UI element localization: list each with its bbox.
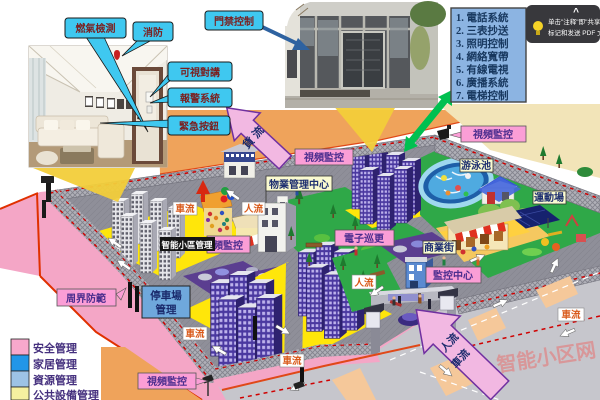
svg-text:游泳池: 游泳池 <box>461 159 491 172</box>
svg-text:視頻監控: 視頻監控 <box>472 128 513 141</box>
svg-text:報警系統: 報警系統 <box>180 92 220 105</box>
svg-text:3. 照明控制: 3. 照明控制 <box>456 37 509 50</box>
svg-text:視頻監控: 視頻監控 <box>146 375 187 388</box>
svg-text:頻監控: 頻監控 <box>213 239 243 252</box>
svg-text:4. 網絡寬帶: 4. 網絡寬帶 <box>456 50 509 63</box>
svg-text:車流: 車流 <box>185 328 205 340</box>
svg-text:5. 有線電視: 5. 有線電視 <box>456 63 509 76</box>
svg-text:資源管理: 資源管理 <box>33 373 77 387</box>
svg-text:運動場: 運動場 <box>534 191 564 204</box>
svg-text:周界防範: 周界防範 <box>66 292 106 305</box>
svg-text:公共設備管理: 公共設備管理 <box>33 388 99 400</box>
svg-text:消防: 消防 <box>143 26 163 39</box>
svg-text:安全管理: 安全管理 <box>33 341 77 355</box>
svg-text:物業管理中心: 物業管理中心 <box>269 178 329 191</box>
svg-text:停車場: 停車場 <box>150 289 182 302</box>
svg-text:1. 電話系統: 1. 電話系統 <box>456 11 509 24</box>
svg-text:^: ^ <box>573 7 579 18</box>
svg-text:電子巡更: 電子巡更 <box>344 232 385 245</box>
svg-text:家居管理: 家居管理 <box>33 357 77 371</box>
svg-text:燃氣檢測: 燃氣檢測 <box>76 22 116 35</box>
svg-text:人流: 人流 <box>244 203 264 215</box>
svg-text:車流: 車流 <box>282 355 302 367</box>
svg-text:2. 三表抄送: 2. 三表抄送 <box>456 24 509 37</box>
svg-text:单击"注释"即"共享": 单击"注释"即"共享" <box>548 17 600 26</box>
svg-text:視頻監控: 視頻監控 <box>303 151 344 164</box>
svg-text:可視對講: 可視對講 <box>180 66 220 79</box>
svg-text:智能小區管理: 智能小區管理 <box>160 240 213 250</box>
svg-text:監控中心: 監控中心 <box>433 269 473 282</box>
svg-text:6. 廣播系統: 6. 廣播系統 <box>456 76 509 89</box>
svg-text:人流: 人流 <box>354 277 374 289</box>
svg-text:商業街: 商業街 <box>424 241 454 254</box>
svg-text:車流: 車流 <box>561 309 581 321</box>
svg-text:管理: 管理 <box>156 303 177 316</box>
svg-text:門禁控制: 門禁控制 <box>214 15 254 28</box>
svg-text:車流: 車流 <box>175 203 195 215</box>
svg-text:7. 電梯控制: 7. 電梯控制 <box>456 89 509 102</box>
svg-text:标记和发送 PDF 文: 标记和发送 PDF 文 <box>548 28 600 37</box>
svg-text:緊急按鈕: 緊急按鈕 <box>179 120 219 133</box>
